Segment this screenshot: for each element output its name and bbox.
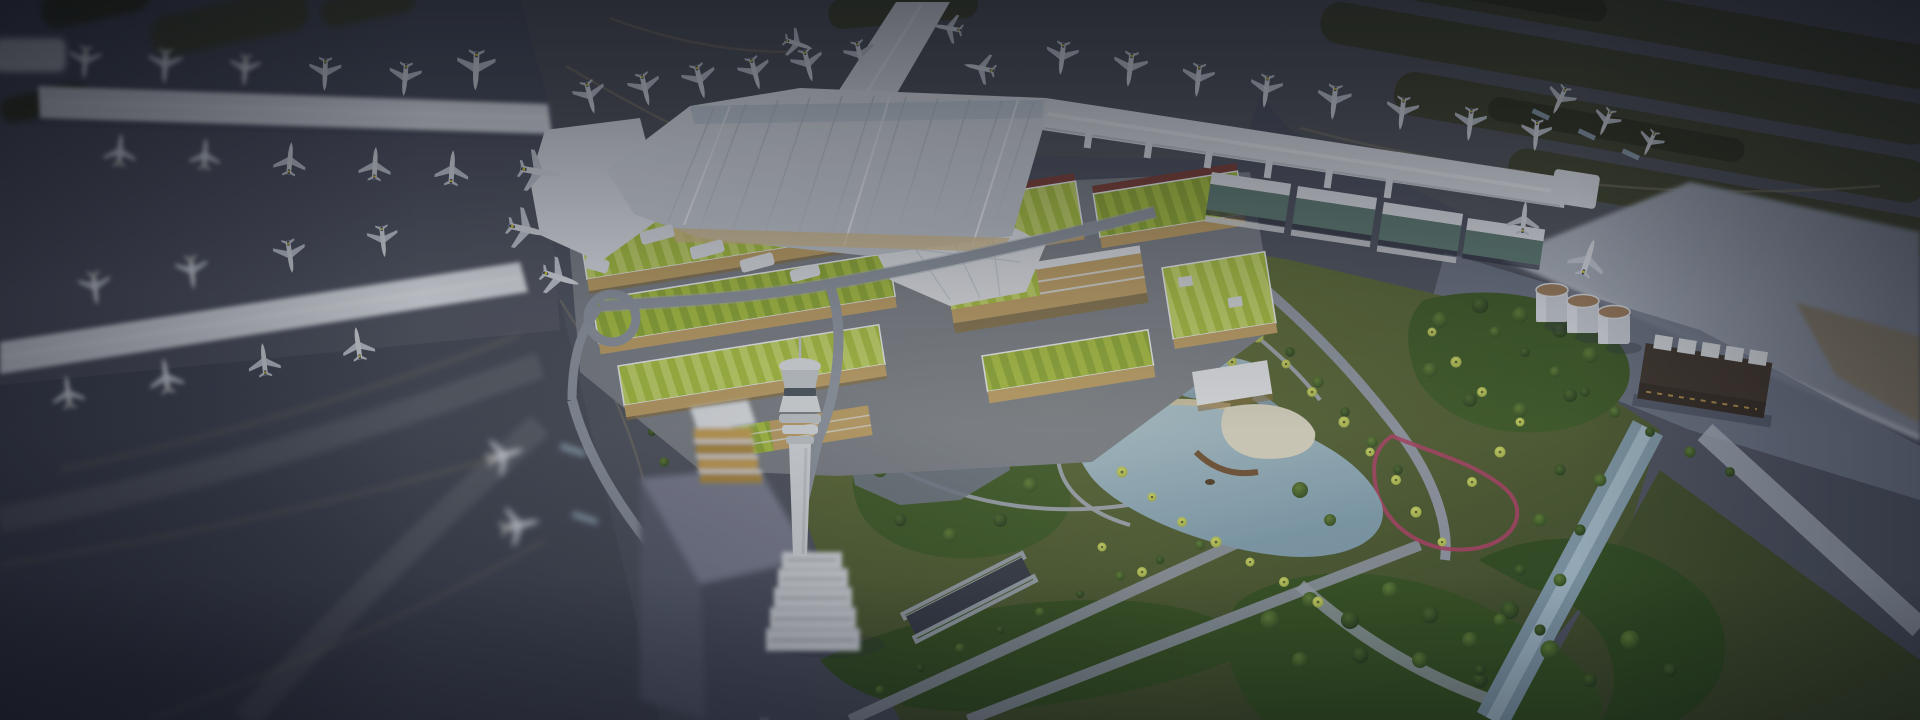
hero-dark-overlay [0,0,1920,720]
airport-render-scene [0,0,1920,720]
airport-aerial-hero [0,0,1920,720]
